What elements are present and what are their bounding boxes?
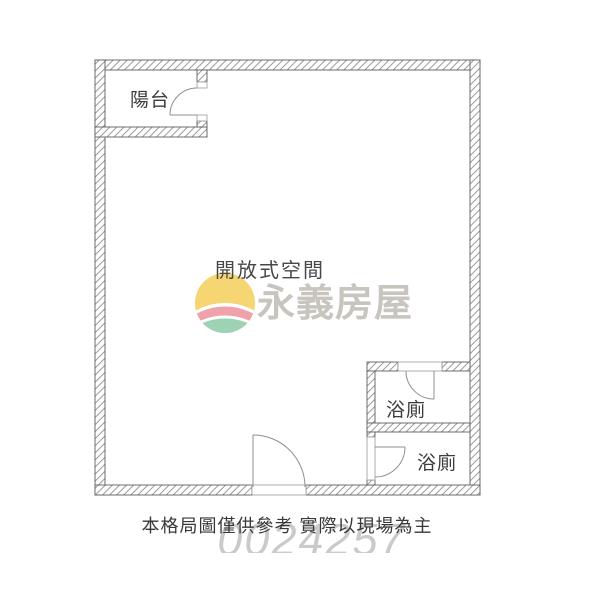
wall-bath-left-upper: [367, 371, 375, 423]
bathroom-upper-label: 浴廁: [386, 395, 426, 422]
wall-left: [95, 60, 105, 495]
wall-balcony-right-lower: [197, 121, 207, 127]
entry-door: [253, 435, 305, 487]
balcony-label: 陽台: [130, 85, 170, 112]
disclaimer-text: 本格局圖僅供參考 實際以現場為主: [0, 512, 574, 538]
bath-lower-door-arc: [375, 447, 405, 477]
wall-bath-divider: [367, 423, 470, 432]
bath-lower-door: [375, 447, 405, 477]
wall-balcony-bottom: [95, 127, 207, 137]
wall-top: [95, 60, 480, 70]
wall-bath-left-lower-a: [367, 432, 375, 437]
bathroom-lower-label: 浴廁: [417, 448, 457, 475]
entry-door-arc: [253, 435, 305, 487]
floor-plan-image: 0024257 永義房屋 陽台 開放式空間 浴廁 浴廁 本格局圖僅供參考 實際以…: [0, 0, 600, 590]
logo-ground-shape: [165, 319, 285, 439]
balcony-door-jamb-top: [197, 82, 207, 88]
bath-lower-door-threshold: [367, 437, 375, 480]
wall-bath-top-left: [367, 362, 398, 371]
wall-right: [470, 60, 480, 495]
logo-gap2-shape: [165, 316, 285, 436]
entry-door-threshold: [252, 485, 306, 495]
bath-upper-door-threshold: [398, 362, 442, 371]
balcony-door: [170, 88, 197, 115]
wall-bath-top-right: [442, 362, 470, 371]
open-space-label: 開放式空間: [215, 254, 325, 283]
wall-bottom-right: [306, 485, 480, 495]
wall-bath-left-lower-b: [367, 480, 375, 485]
balcony-door-arc: [170, 88, 197, 115]
wall-bottom-left: [95, 485, 252, 495]
balcony-door-jamb-bottom: [197, 115, 207, 121]
wall-balcony-right-upper: [197, 70, 207, 82]
